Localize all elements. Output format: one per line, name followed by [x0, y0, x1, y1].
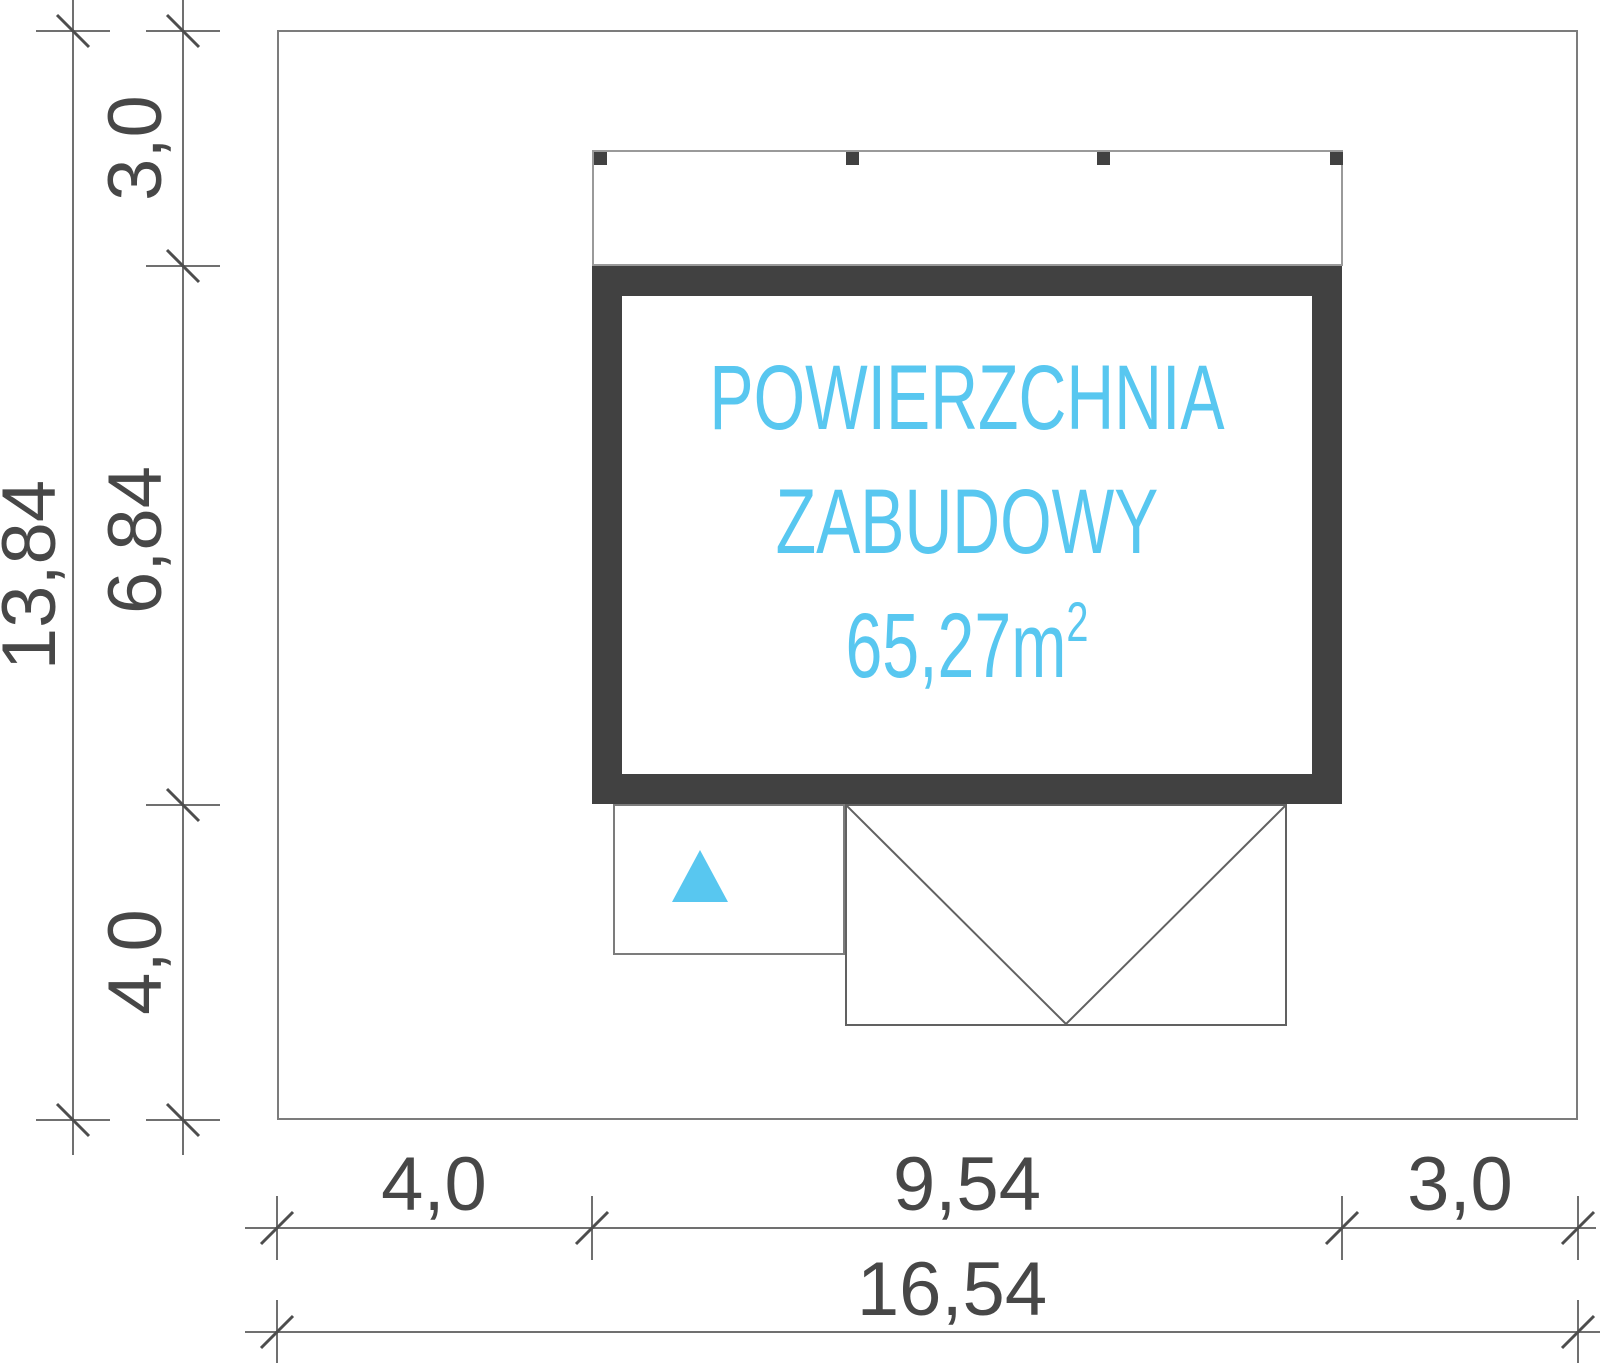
area-value-superscript: 2: [1066, 591, 1088, 653]
roof-post-icon: [594, 152, 607, 165]
roof-post-icon: [1330, 152, 1343, 165]
area-label-line2: ZABUDOWY: [776, 476, 1159, 568]
dim-label-left-bottom: 4,0: [98, 909, 174, 1015]
entrance-triangle-icon: [672, 850, 728, 902]
area-label-value: 65,27m2: [845, 600, 1088, 692]
driveway: [845, 804, 1287, 1026]
dim-label-left-middle: 6,84: [98, 466, 174, 614]
dim-label-left-top: 3,0: [98, 95, 174, 201]
area-value: 65,27m: [845, 595, 1066, 697]
roof-post-icon: [846, 152, 859, 165]
entrance-porch: [613, 804, 845, 955]
dim-label-bottom-overall: 16,54: [857, 1252, 1047, 1328]
roof-post-icon: [1097, 152, 1110, 165]
area-label: POWIERZCHNIA ZABUDOWY 65,27m2: [592, 266, 1342, 804]
driveway-diagonals: [847, 806, 1285, 1024]
area-label-line1: POWIERZCHNIA: [709, 352, 1224, 444]
dim-label-left-overall: 13,84: [0, 480, 68, 670]
dim-label-bottom-right: 3,0: [1407, 1147, 1513, 1223]
site-plan-drawing: POWIERZCHNIA ZABUDOWY 65,27m2: [0, 0, 1608, 1363]
dim-label-bottom-left: 4,0: [381, 1147, 487, 1223]
dim-label-bottom-middle: 9,54: [893, 1147, 1041, 1223]
roof-overhang: [592, 150, 1343, 266]
